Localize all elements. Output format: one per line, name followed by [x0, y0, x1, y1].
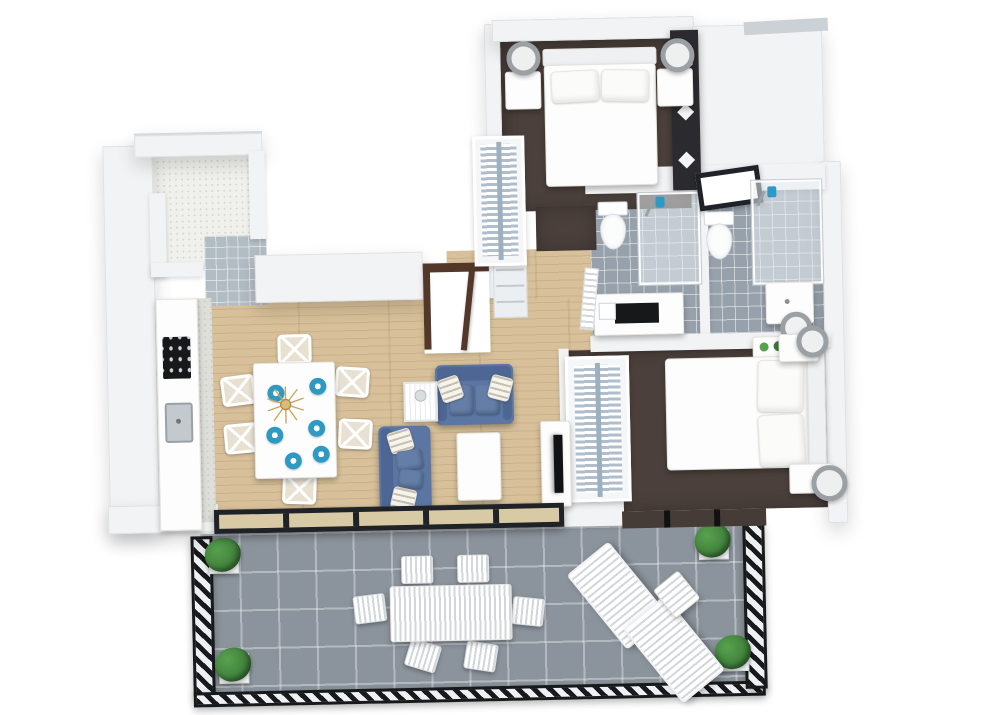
bed1-pillow	[550, 69, 600, 104]
entry-threshold	[423, 262, 491, 353]
northeast-wall-mass	[692, 23, 825, 168]
small-plant	[759, 342, 768, 351]
faucet	[176, 419, 181, 424]
outdoor-chair	[457, 554, 490, 583]
shower-control	[767, 186, 776, 197]
table-decor	[414, 390, 426, 402]
apartment-3d-floorplan	[0, 0, 1000, 715]
vanity1	[593, 292, 684, 336]
bed1-nightstand-left	[505, 71, 542, 110]
floorplan-canvas	[0, 0, 1000, 715]
sofa	[435, 364, 514, 426]
bed1-pillow	[601, 69, 649, 102]
tv	[553, 435, 563, 493]
terrace-north-wall-segment	[564, 501, 624, 526]
throw-pillow-blue	[395, 448, 424, 472]
vanity1-sink	[599, 303, 616, 320]
outdoor-dining-table	[390, 584, 513, 643]
chaise-sofa	[378, 425, 432, 512]
utility-east-wall	[248, 151, 266, 239]
shelf-line	[496, 268, 524, 271]
bed1-nightstand-right	[657, 68, 694, 107]
bedroom1-wardrobe	[472, 135, 527, 266]
throw-pillow-blue	[399, 469, 424, 489]
bedroom2-south-window-wall	[622, 508, 766, 528]
divider-cutout	[678, 152, 695, 169]
bed2-pillow	[757, 413, 806, 467]
vanity1-counter	[615, 303, 659, 324]
outdoor-chair	[352, 593, 387, 625]
bedroom1-north-wall	[492, 16, 694, 42]
dining-chair	[334, 366, 370, 398]
window-mullion	[353, 512, 359, 526]
cooktop	[162, 336, 191, 379]
bed2-pillow	[757, 360, 804, 413]
bedroom1-carpet-doorway	[536, 206, 597, 251]
window-mullion	[423, 511, 429, 525]
outdoor-chair	[463, 640, 499, 673]
gold-centerpiece	[263, 382, 308, 427]
window-post	[664, 510, 670, 527]
dining-chair	[220, 373, 257, 407]
dining-north-wall	[255, 252, 424, 304]
dining-chair	[338, 418, 373, 450]
utility-counter-horizontal	[151, 262, 203, 277]
side-table	[403, 381, 438, 422]
window-mullion	[493, 509, 499, 523]
window-mullion	[283, 513, 289, 527]
shower1-glass	[637, 192, 701, 285]
bed2-headboard	[807, 349, 828, 473]
shower-arm	[645, 201, 654, 217]
shelf-line	[496, 284, 524, 287]
faucet	[785, 299, 790, 304]
utility-north-wall	[134, 131, 262, 158]
outdoor-chair	[401, 555, 434, 584]
shower-arm	[756, 191, 765, 207]
shower2-glass	[751, 179, 823, 284]
window-post	[714, 509, 720, 526]
shower-control	[655, 197, 664, 208]
outdoor-chair	[511, 596, 546, 627]
shelf-line	[497, 300, 525, 303]
kitchen-sink	[165, 402, 194, 443]
dining-chair	[277, 334, 312, 365]
coffee-table	[456, 432, 501, 501]
bedroom2-wardrobe	[565, 355, 632, 502]
